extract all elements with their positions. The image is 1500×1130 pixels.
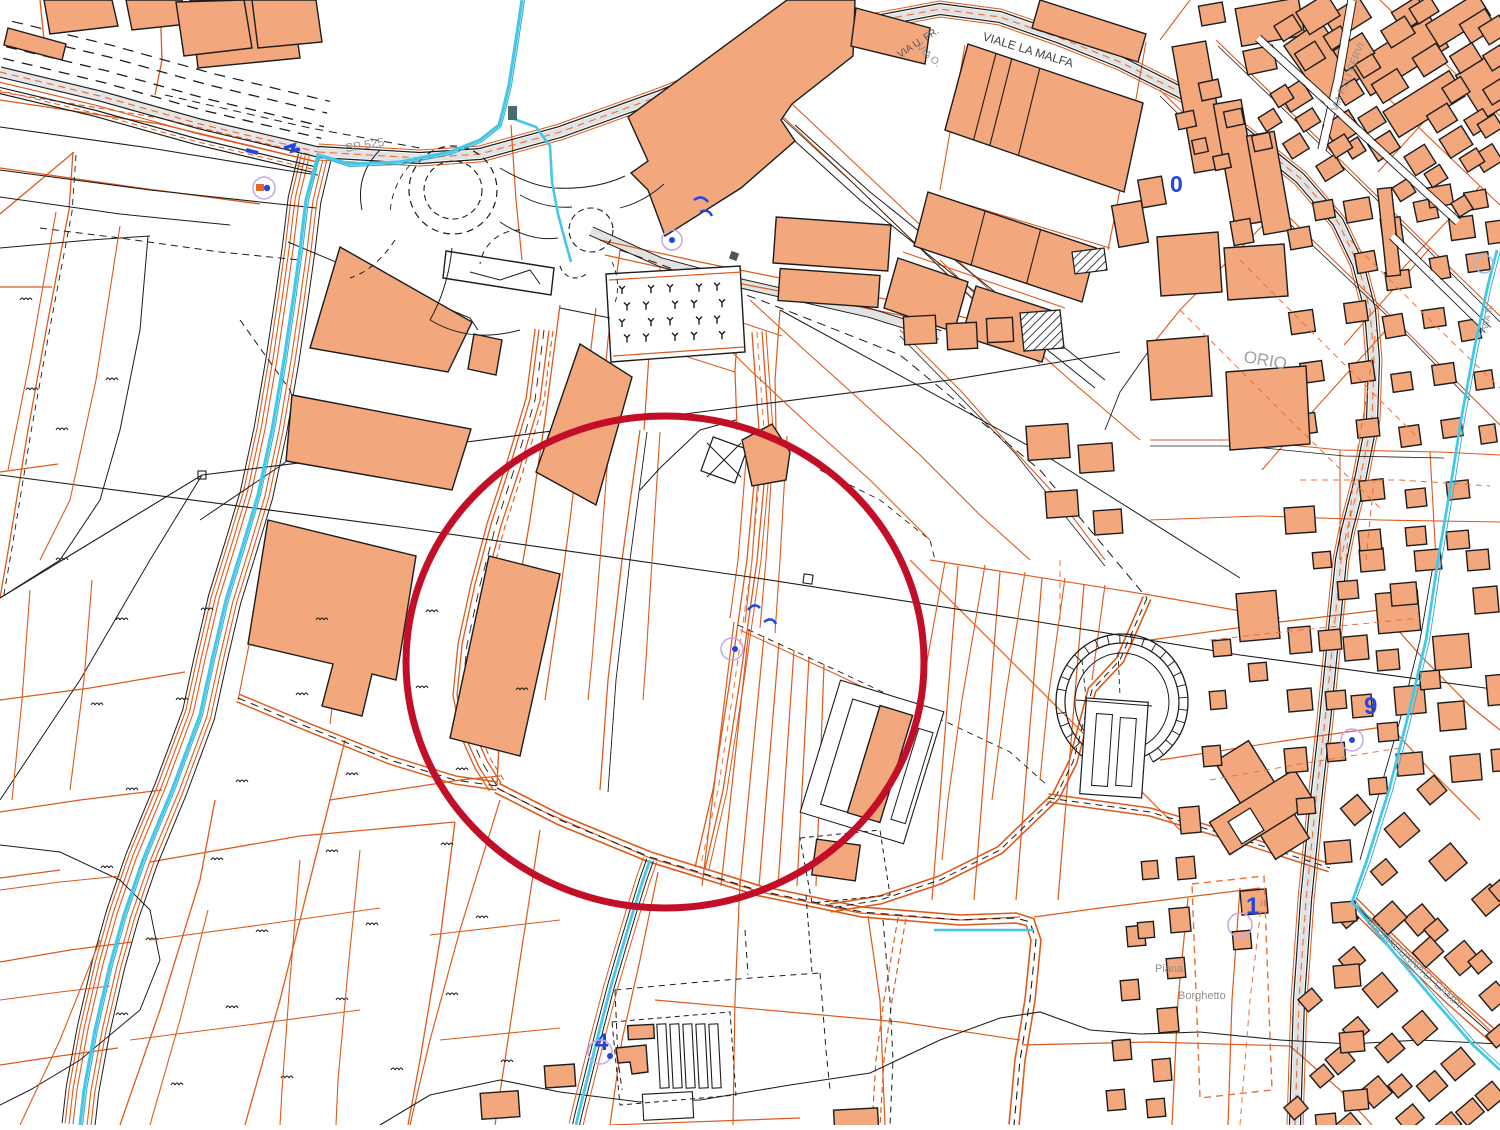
svg-text:Borghetto: Borghetto (1178, 990, 1226, 1002)
svg-text:9: 9 (1364, 693, 1377, 720)
svg-text:Piana: Piana (1155, 963, 1184, 975)
svg-text:0: 0 (1170, 171, 1183, 197)
